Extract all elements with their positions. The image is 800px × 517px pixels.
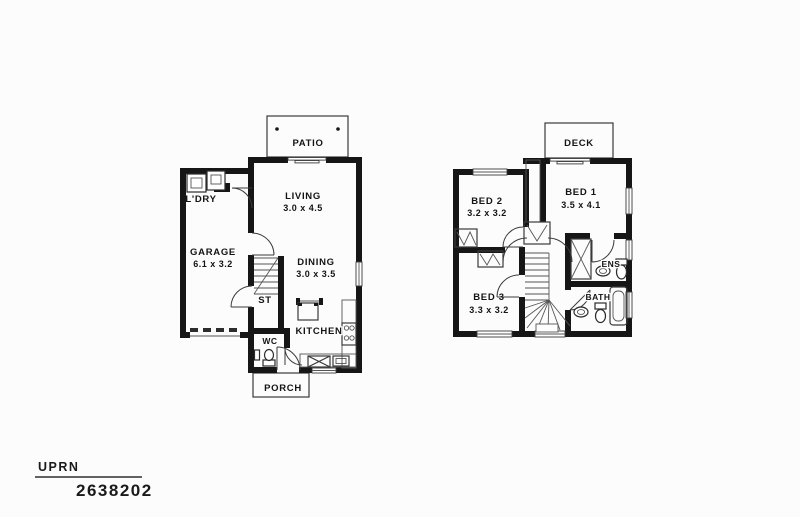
dining-dims: 3.0 x 3.5 (296, 269, 336, 279)
bed3-label: BED 3 (473, 292, 504, 303)
shower-icon (571, 239, 591, 279)
living-label: LIVING (285, 191, 321, 202)
patio-label: PATIO (292, 138, 323, 149)
deck-label: DECK (564, 138, 594, 149)
kitchen-sink-icon (308, 356, 330, 367)
ground-floor-plan: PATIO LIVING 3.0 x 4.5 L'DRY GARAGE 6.1 … (180, 116, 362, 397)
uprn-label: UPRN (38, 460, 79, 474)
wc-label: WC (262, 336, 277, 346)
first-floor-plan: DECK BED 2 3.2 x 3.2 BED 1 3.5 x 4.1 BED… (453, 123, 632, 337)
bathtub-icon (610, 287, 627, 325)
wardrobe-icons (455, 222, 550, 267)
uprn-footer: UPRN 2638202 (35, 460, 153, 500)
toilet-icon (595, 303, 606, 323)
laundry-label: L'DRY (185, 194, 216, 205)
patio-outline (267, 116, 348, 157)
floorplan-page: PATIO LIVING 3.0 x 4.5 L'DRY GARAGE 6.1 … (0, 0, 800, 517)
garage-dims: 6.1 x 3.2 (193, 259, 233, 269)
bed2-dims: 3.2 x 3.2 (467, 208, 507, 218)
laundry-sink-icon (187, 171, 225, 192)
bath-label: BATH (586, 292, 611, 302)
bed2-label: BED 2 (471, 196, 502, 207)
bed1-label: BED 1 (565, 187, 596, 198)
patio-post-icon (275, 127, 279, 131)
living-dims: 3.0 x 4.5 (283, 203, 323, 213)
dining-label: DINING (297, 257, 334, 268)
porch-label: PORCH (264, 383, 302, 394)
toilet-icon (255, 350, 276, 367)
bed3-dims: 3.3 x 3.2 (469, 305, 509, 315)
floorplan-drawing: PATIO LIVING 3.0 x 4.5 L'DRY GARAGE 6.1 … (0, 0, 800, 517)
ground-stairs-icon (254, 258, 278, 294)
kitchen-label: KITCHEN (295, 326, 342, 337)
patio-post-icon (336, 127, 340, 131)
garage-door (190, 330, 240, 336)
ensuite-label: ENS (602, 259, 621, 269)
bed1-dims: 3.5 x 4.1 (561, 200, 601, 210)
basin-icon (574, 307, 588, 317)
uprn-value: 2638202 (76, 481, 153, 500)
upper-stairs-icon (525, 253, 570, 332)
stove-icon (342, 323, 356, 345)
stairs-label: ST (258, 295, 272, 306)
garage-label: GARAGE (190, 247, 236, 258)
